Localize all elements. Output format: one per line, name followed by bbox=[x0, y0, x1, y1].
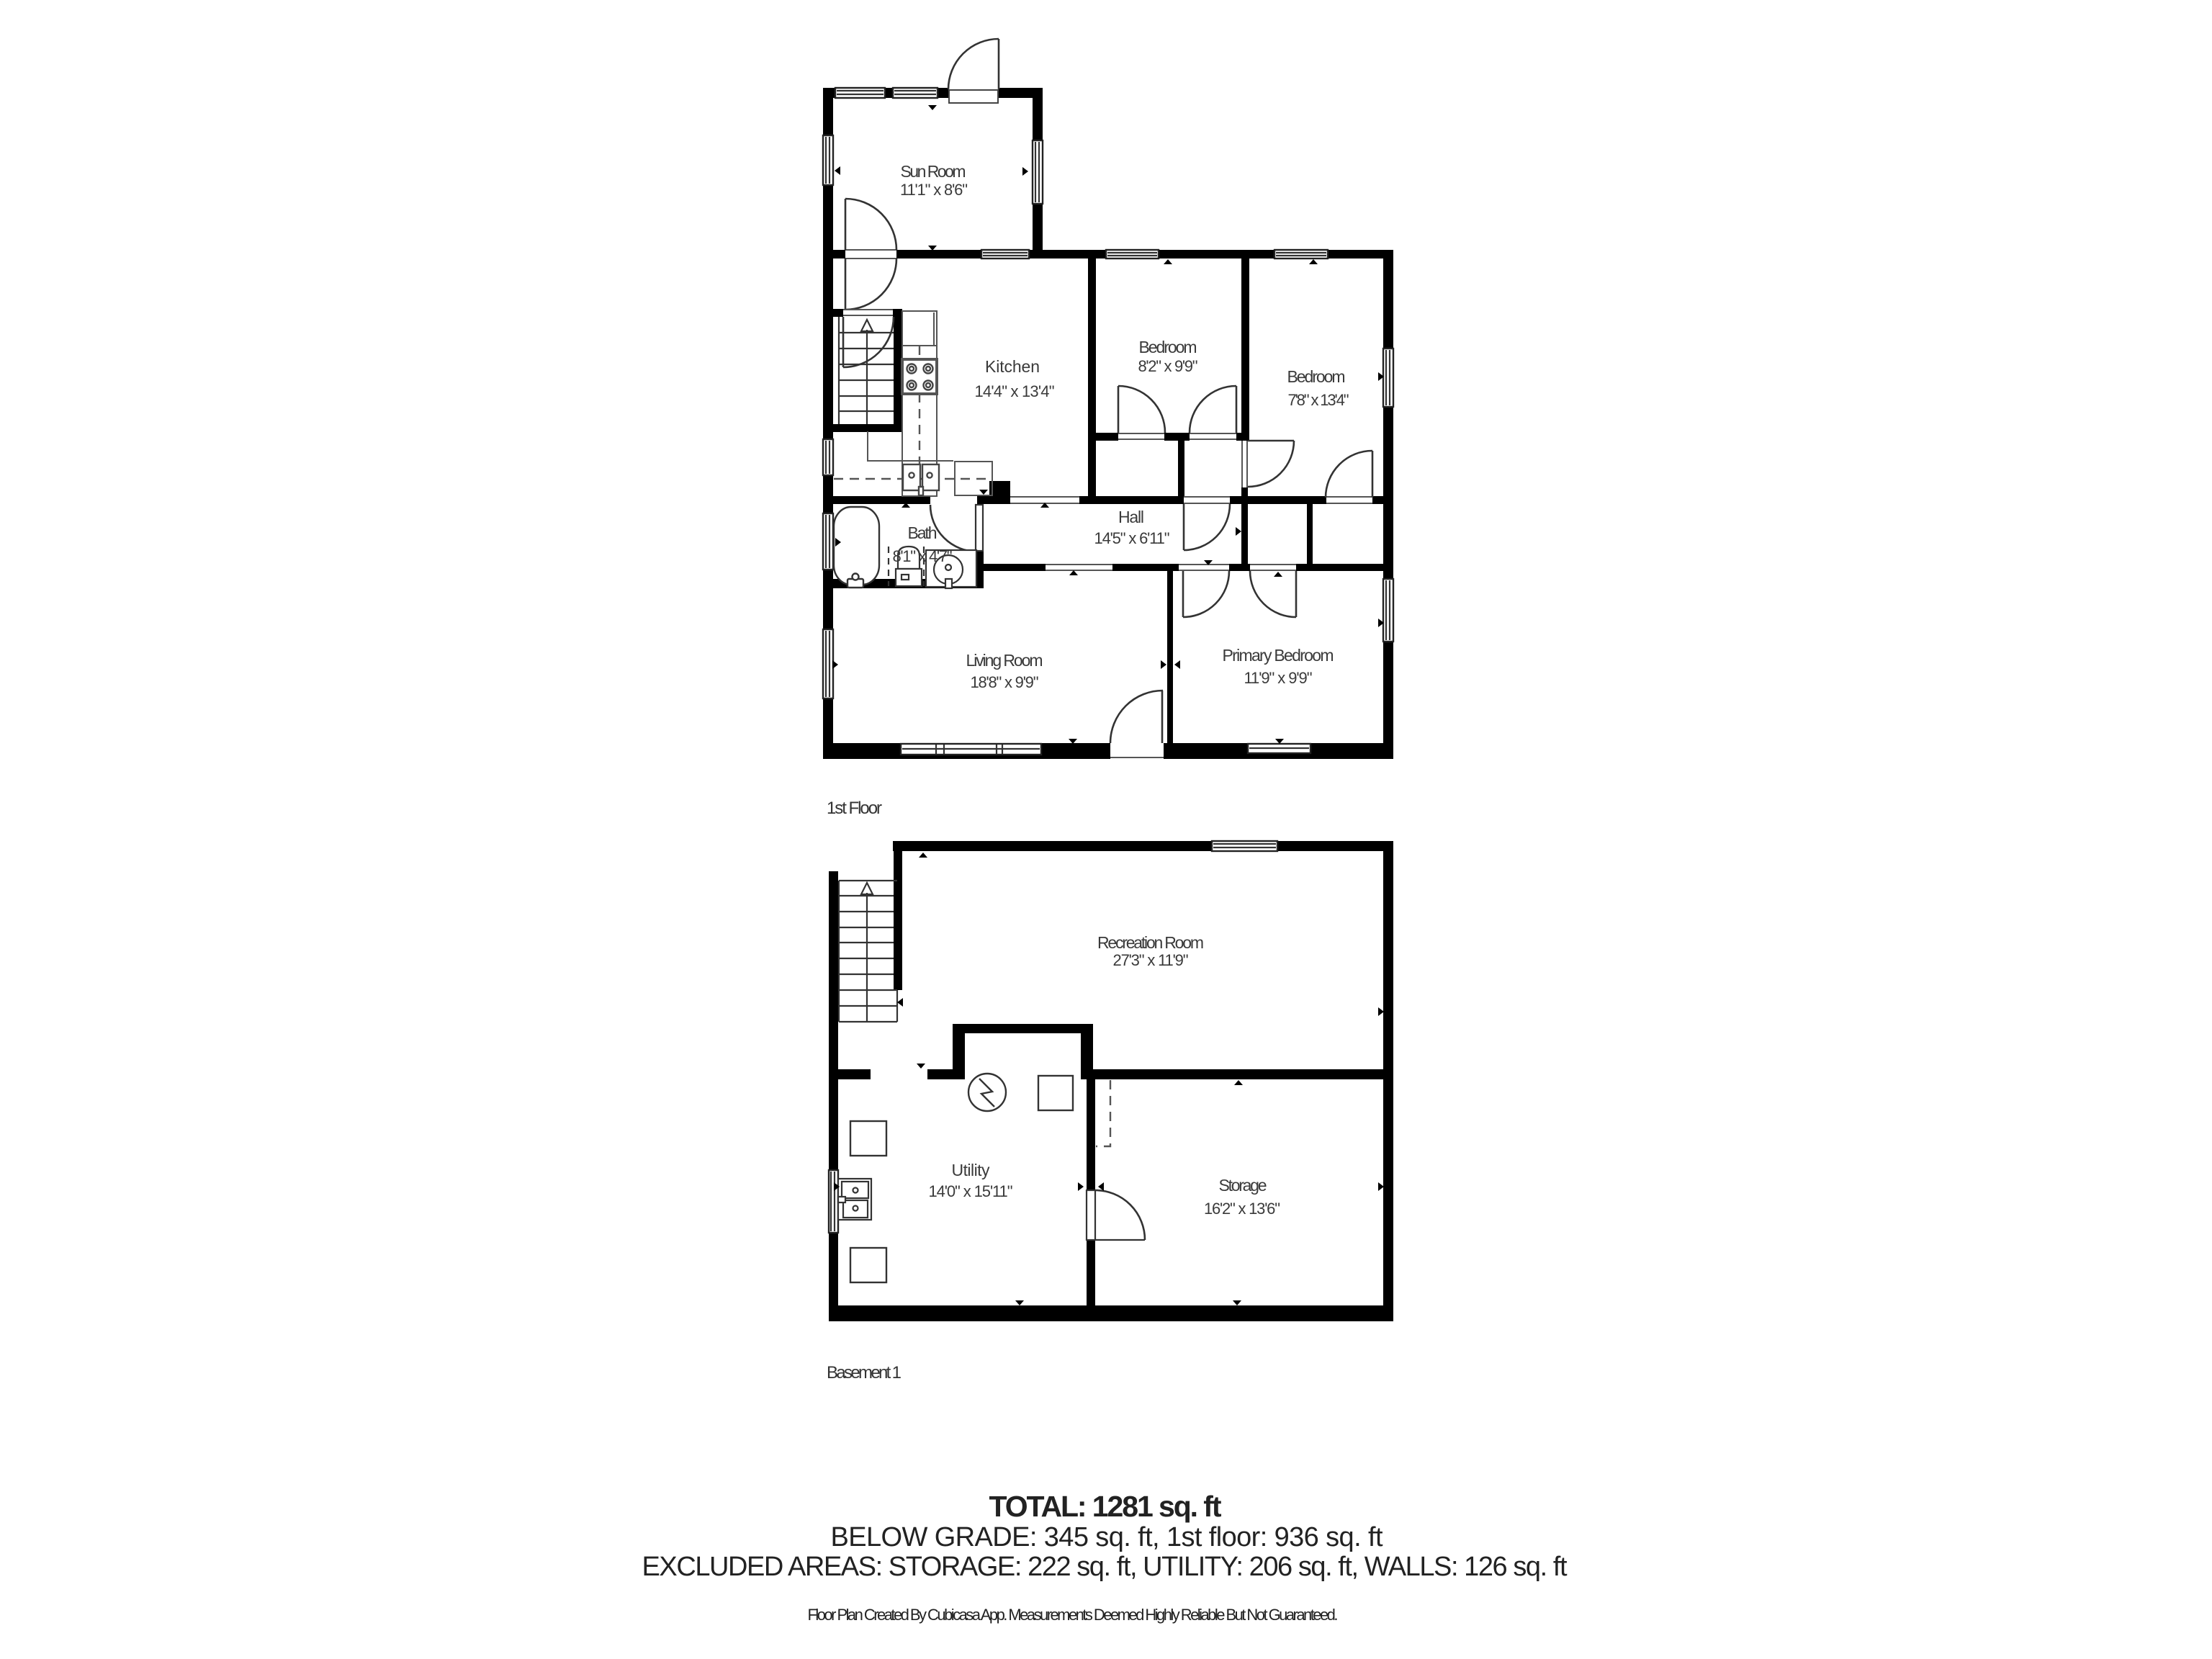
svg-text:Recreation Room: Recreation Room bbox=[1097, 933, 1204, 952]
svg-text:14'4" x 13'4": 14'4" x 13'4" bbox=[975, 382, 1055, 400]
svg-text:11'9" x 9'9": 11'9" x 9'9" bbox=[1244, 669, 1313, 687]
svg-text:Storage: Storage bbox=[1219, 1176, 1267, 1195]
svg-text:7'8" x 13'4": 7'8" x 13'4" bbox=[1288, 391, 1349, 409]
svg-text:Kitchen: Kitchen bbox=[985, 357, 1040, 376]
svg-text:1st Floor: 1st Floor bbox=[827, 799, 882, 818]
svg-text:Floor Plan Created By Cubicasa: Floor Plan Created By Cubicasa App. Meas… bbox=[808, 1606, 1339, 1624]
svg-text:Bedroom: Bedroom bbox=[1139, 338, 1197, 356]
svg-text:14'5" x 6'11": 14'5" x 6'11" bbox=[1094, 529, 1170, 547]
svg-text:Living Room: Living Room bbox=[966, 651, 1043, 670]
svg-text:Utility: Utility bbox=[952, 1161, 991, 1179]
svg-text:18'8" x 9'9": 18'8" x 9'9" bbox=[971, 673, 1039, 691]
svg-text:11'1" x 8'6": 11'1" x 8'6" bbox=[900, 181, 968, 199]
svg-text:8'1" x 4'7": 8'1" x 4'7" bbox=[893, 547, 953, 565]
svg-text:14'0" x 15'11": 14'0" x 15'11" bbox=[929, 1182, 1013, 1200]
svg-text:8'2" x 9'9": 8'2" x 9'9" bbox=[1138, 357, 1198, 375]
svg-text:Bedroom: Bedroom bbox=[1287, 367, 1346, 386]
svg-text:Bath: Bath bbox=[908, 523, 938, 542]
svg-text:TOTAL: 1281 sq. ft: TOTAL: 1281 sq. ft bbox=[989, 1490, 1222, 1523]
svg-text:EXCLUDED AREAS: STORAGE: 222 s: EXCLUDED AREAS: STORAGE: 222 sq. ft, UTI… bbox=[642, 1552, 1568, 1582]
svg-text:Primary Bedroom: Primary Bedroom bbox=[1223, 646, 1334, 665]
svg-text:16'2" x 13'6": 16'2" x 13'6" bbox=[1204, 1200, 1280, 1218]
svg-text:BELOW GRADE: 345 sq. ft, 1st f: BELOW GRADE: 345 sq. ft, 1st floor: 936 … bbox=[831, 1522, 1383, 1552]
svg-text:Sun Room: Sun Room bbox=[901, 162, 966, 181]
svg-text:Basement 1: Basement 1 bbox=[827, 1363, 902, 1382]
svg-text:Hall: Hall bbox=[1118, 508, 1144, 526]
svg-text:27'3" x 11'9": 27'3" x 11'9" bbox=[1113, 951, 1189, 969]
